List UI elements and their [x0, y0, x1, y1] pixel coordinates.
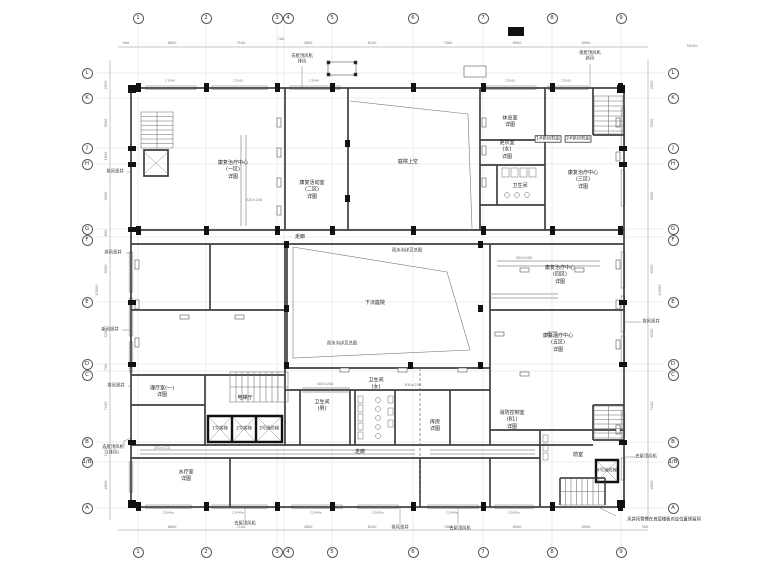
grid-bubble-left: C: [82, 370, 93, 381]
dim-text: 8100: [368, 525, 377, 529]
room-label-rehab-5: 康复治疗中心 (五区) 详图: [543, 333, 573, 353]
duct-size: 400×200: [317, 382, 333, 386]
grid-bubble-right: C: [668, 370, 679, 381]
grid-bubble-top: 7: [478, 13, 489, 24]
grid-bubble-left: G: [82, 224, 93, 235]
elevator-label-2: 2号客梯: [236, 426, 252, 432]
fan-label: 去屋顶风机: [449, 526, 471, 532]
dim-total: 43500: [658, 284, 662, 295]
room-label-fire-control: 消防控制室 (B1) 详图: [499, 410, 524, 430]
dim-text: 6900: [582, 525, 591, 529]
window-tag: C2040a: [310, 511, 321, 514]
room-label-rehab-1: 康复治疗中心 (一区) 详图: [218, 160, 248, 180]
grid-bubble-left: E: [82, 297, 93, 308]
dim-text: 6800: [168, 41, 177, 45]
elevator-label-1: 1号客梯: [212, 426, 228, 432]
grid-bubble-right: L: [668, 68, 679, 79]
dim-text: 900: [642, 525, 649, 529]
room-label-wc-f: 卫生间 (女): [368, 377, 383, 391]
fan-label: 接屋顶风机 新风: [579, 50, 601, 62]
dim-text: 4600: [650, 481, 654, 490]
shaft-label: 排风竖井: [106, 169, 123, 175]
dim-text: 700: [104, 364, 108, 371]
dim-text: 700: [278, 37, 285, 41]
dim-total: 43500: [95, 284, 99, 295]
window-tag: C1540: [233, 79, 242, 82]
window-tag: C2040: [309, 79, 318, 82]
dim-text: 4800: [304, 41, 313, 45]
duct-size: 630×250: [405, 383, 421, 387]
duct-size: 500×200: [516, 256, 532, 260]
room-label-elev-hall: 电梯厅: [237, 395, 252, 402]
grid-bubble-right: E: [668, 297, 679, 308]
dim-text: 6900: [582, 41, 591, 45]
grid-bubble-left: K: [82, 93, 93, 104]
grid-bubble-right: H: [668, 159, 679, 170]
room-label-locker: 更衣室 (女) 详图: [499, 140, 514, 160]
shaft-label: 排风竖井: [642, 319, 659, 325]
grid-bubble-left: D: [82, 359, 93, 370]
dim-text: 7100: [104, 402, 108, 411]
dim-text: 2500: [104, 81, 108, 90]
grid-bubble-top: 3: [272, 13, 283, 24]
leader-lines: [122, 64, 641, 524]
grid-bubble-bottom: 7: [478, 547, 489, 558]
duct-size: 250×120: [154, 446, 170, 450]
dim-text: 2500: [650, 81, 654, 90]
dim-text: 5000: [650, 119, 654, 128]
plan-linework: [0, 0, 760, 570]
grid-bubble-left: A: [82, 503, 93, 514]
fan-label: 去屋顶风机: [635, 454, 657, 460]
shaft-label: 排风竖井: [104, 250, 121, 256]
dim-text: 6200: [650, 329, 654, 338]
ahu-tag: 1#新风机组: [535, 135, 562, 142]
grid-bubble-top: 4: [283, 13, 294, 24]
general-note: 风井风管需在首层楼板对应位置预留洞: [627, 517, 700, 523]
grid-bubble-bottom: 4: [283, 547, 294, 558]
room-label-vestibule: 前室: [573, 452, 583, 459]
window-tag: C2040: [561, 79, 570, 82]
shaft-label: 排风竖井: [391, 525, 408, 531]
room-label-courtyard: 下沉庭院: [365, 300, 385, 307]
dim-text: 4600: [104, 481, 108, 490]
grid-bubble-left: B: [82, 437, 93, 448]
shaft-label: 排风竖井: [107, 383, 124, 389]
window-tag: C1540: [165, 79, 174, 82]
grid-bubble-bottom: 8: [547, 547, 558, 558]
room-label-rest: 休息室 详图: [502, 115, 517, 129]
grid-bubble-left: J: [82, 143, 93, 154]
dim-total: 50100: [686, 44, 697, 48]
grid-bubble-top: 1: [133, 13, 144, 24]
elevator-label-3: 3号消防梯: [259, 426, 279, 432]
dim-text: 7000: [444, 41, 453, 45]
grid-bubble-top: 8: [547, 13, 558, 24]
room-label-therapy-1: 理疗室(一) 详图: [150, 385, 174, 399]
dim-text: 800: [104, 230, 108, 237]
grid-bubble-right: B: [668, 437, 679, 448]
room-label-void: 庭院上空: [398, 159, 418, 166]
grid-bubble-right: G: [668, 224, 679, 235]
grid-bubble-left: F: [82, 235, 93, 246]
dim-text: 6500: [104, 192, 108, 201]
grid-bubble-bottom: 3: [272, 547, 283, 558]
grid-bubble-bottom: 1: [133, 547, 144, 558]
dim-text: 8100: [368, 41, 377, 45]
fan-label: 去屋顶风机 (排风): [102, 444, 124, 456]
dim-text: 5000: [104, 119, 108, 128]
dim-text: 1600: [104, 152, 108, 161]
grid-bubble-right: A: [668, 503, 679, 514]
dim-text: 900: [123, 41, 130, 45]
ahu-tag: 2#新风机组: [565, 135, 592, 142]
dim-text: 6800: [168, 525, 177, 529]
window-tag: C2040a: [372, 511, 383, 514]
grid-bubble-bottom: 6: [408, 547, 419, 558]
window-tag: C2040a: [446, 511, 457, 514]
room-label-wc-m: 卫生间 (男): [314, 399, 329, 413]
grid-bubble-right: K: [668, 93, 679, 104]
corridor-label: 走廊: [355, 449, 365, 456]
dim-text: 7100: [237, 41, 246, 45]
grid-bubble-right: F: [668, 235, 679, 246]
window-tag: C2040a: [508, 511, 519, 514]
grid-bubble-right: 1/B: [668, 457, 679, 468]
walls: [131, 88, 624, 507]
grid-bubble-bottom: 9: [616, 547, 627, 558]
grid-lines: [96, 24, 664, 546]
room-label-activity: 康复活动室 (二区) 详图: [299, 180, 324, 200]
duct-size: 320×200: [246, 198, 262, 202]
room-label-wc: 卫生间: [512, 183, 527, 190]
grid-bubble-top: 9: [616, 13, 627, 24]
room-label-rehab-3: 康复治疗中心 (三区) 详图: [568, 170, 598, 190]
dim-text: 6900: [513, 525, 522, 529]
grid-bubble-top: 6: [408, 13, 419, 24]
dim-text: 7100: [650, 402, 654, 411]
window-tag: C2040a: [162, 511, 173, 514]
window-tag: C2040: [505, 79, 514, 82]
fan-label: 去屋顶风机: [234, 521, 256, 527]
corridor-label: 走廊: [295, 234, 305, 241]
grid-bubble-top: 5: [327, 13, 338, 24]
grid-bubble-top: 2: [201, 13, 212, 24]
grid-bubble-left: 1/B: [82, 457, 93, 468]
grid-bubble-bottom: 2: [201, 547, 212, 558]
room-label-hydrotherapy: 水疗室 详图: [178, 469, 193, 483]
floor-plan-drawing: 1 2 3 4 5 6 7 8 9 1 2 3 4 5 6 7 8 9 L K …: [0, 0, 760, 570]
gutter-note: 雨水沟详见总图: [327, 341, 357, 347]
grid-bubble-left: L: [82, 68, 93, 79]
room-label-storage: 库房 详图: [430, 419, 440, 433]
grid-bubble-left: H: [82, 159, 93, 170]
window-tag: C2040a: [232, 511, 243, 514]
gutter-note: 雨水沟详见总图: [392, 248, 422, 254]
dim-text: 6500: [650, 192, 654, 201]
dim-text: 4800: [304, 525, 313, 529]
grid-bubble-right: J: [668, 143, 679, 154]
grid-bubble-right: D: [668, 359, 679, 370]
dim-text: 6900: [513, 41, 522, 45]
room-label-rehab-4: 康复治疗中心 (四区) 详图: [545, 265, 575, 285]
dim-text: 6500: [104, 265, 108, 274]
shaft-label: 新风竖井: [101, 327, 118, 333]
dim-text: 6500: [650, 265, 654, 274]
roof-opening-symbols: [327, 61, 486, 77]
elevator-label-4: 4号消防梯: [597, 468, 617, 474]
grid-bubble-bottom: 5: [327, 547, 338, 558]
duct-runs: [140, 135, 600, 454]
fan-label: 去屋顶风机 排风: [291, 53, 313, 65]
